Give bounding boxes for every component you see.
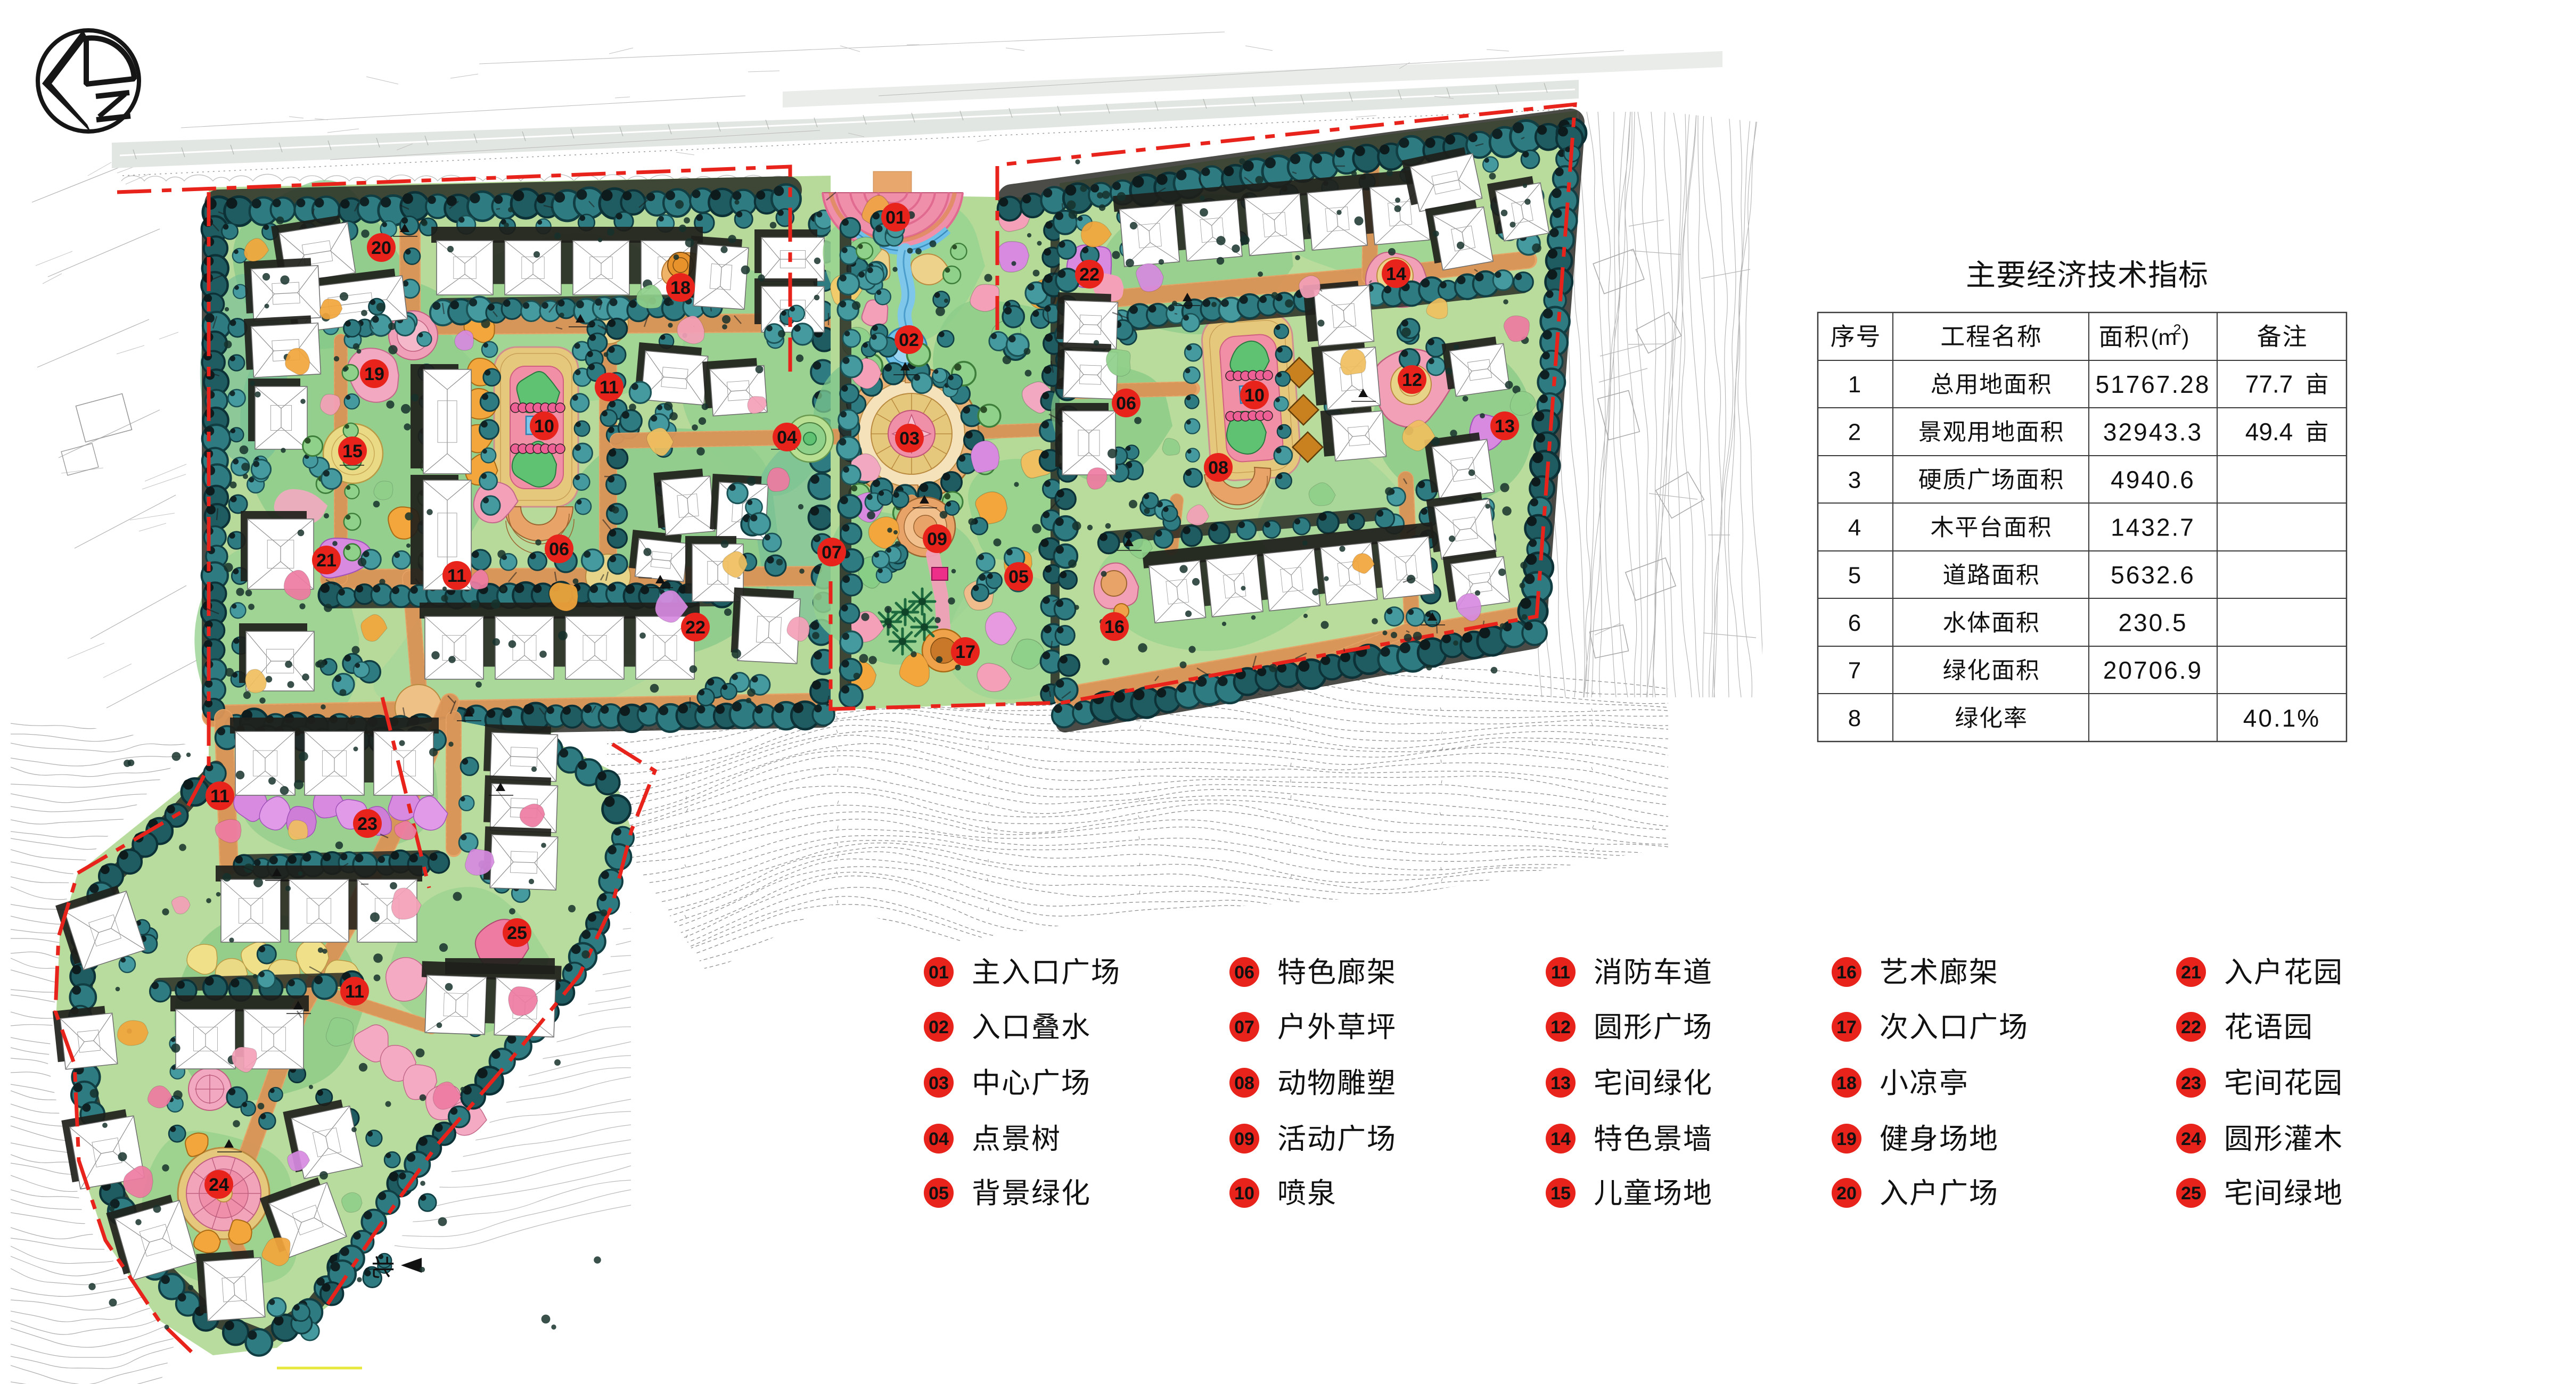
svg-text:11: 11 [600, 377, 619, 398]
svg-text:04: 04 [929, 1129, 949, 1149]
svg-text:7: 7 [1848, 658, 1863, 684]
svg-text:1432.7: 1432.7 [2111, 514, 2195, 541]
svg-text:4: 4 [1848, 515, 1863, 541]
svg-text:3: 3 [1848, 467, 1863, 493]
svg-text:22: 22 [1079, 265, 1100, 285]
svg-text:49.4: 49.4 [2245, 418, 2293, 446]
svg-text:16: 16 [1104, 617, 1125, 637]
svg-text:20: 20 [371, 238, 391, 258]
svg-text:16: 16 [1836, 962, 1857, 983]
svg-text:07: 07 [822, 542, 842, 563]
svg-text:01: 01 [885, 208, 906, 228]
svg-text:09: 09 [927, 529, 947, 549]
svg-text:77.7: 77.7 [2245, 370, 2293, 398]
svg-text:13: 13 [1495, 416, 1515, 436]
svg-text:17: 17 [955, 642, 975, 662]
svg-text:15: 15 [342, 441, 363, 462]
svg-text:08: 08 [1234, 1073, 1254, 1093]
svg-text:18: 18 [670, 278, 691, 298]
svg-text:02: 02 [899, 330, 919, 350]
svg-text:12: 12 [1550, 1017, 1571, 1037]
svg-text:14: 14 [1550, 1129, 1571, 1149]
svg-text:1: 1 [1848, 372, 1863, 398]
svg-text:22: 22 [685, 617, 705, 638]
svg-text:25: 25 [507, 923, 527, 943]
svg-text:40.1%: 40.1% [2243, 704, 2320, 732]
svg-text:05: 05 [1008, 567, 1029, 587]
svg-text:32943.3: 32943.3 [2103, 418, 2203, 446]
svg-text:11: 11 [447, 566, 466, 586]
svg-text:03: 03 [899, 429, 920, 449]
svg-text:11: 11 [1551, 962, 1570, 983]
svg-text:20706.9: 20706.9 [2103, 656, 2203, 684]
svg-text:19: 19 [1836, 1129, 1857, 1149]
svg-text:09: 09 [1234, 1129, 1254, 1149]
svg-text:01: 01 [929, 962, 949, 983]
svg-text:22: 22 [2181, 1017, 2201, 1037]
svg-text:23: 23 [357, 814, 378, 834]
svg-text:13: 13 [1550, 1073, 1571, 1093]
svg-text:230.5: 230.5 [2118, 609, 2187, 637]
svg-text:): ) [2182, 325, 2189, 350]
svg-text:07: 07 [1234, 1017, 1254, 1037]
svg-text:20: 20 [1836, 1183, 1857, 1204]
svg-text:02: 02 [929, 1017, 949, 1037]
svg-text:4940.6: 4940.6 [2111, 466, 2195, 493]
svg-text:10: 10 [1234, 1183, 1254, 1204]
svg-text:17: 17 [1836, 1017, 1857, 1037]
svg-text:8: 8 [1848, 705, 1863, 731]
svg-text:21: 21 [2181, 962, 2201, 983]
svg-text:11: 11 [345, 982, 364, 1002]
svg-text:51767.28: 51767.28 [2096, 370, 2211, 398]
svg-text:11: 11 [210, 786, 229, 806]
svg-text:10: 10 [1244, 385, 1265, 406]
svg-text:21: 21 [316, 550, 337, 571]
svg-text:06: 06 [549, 539, 569, 559]
svg-text:5632.6: 5632.6 [2111, 561, 2195, 589]
svg-text:5: 5 [1848, 562, 1863, 588]
svg-text:25: 25 [2181, 1183, 2201, 1204]
svg-text:15: 15 [1550, 1183, 1571, 1204]
svg-text:19: 19 [364, 364, 384, 384]
svg-text:14: 14 [1386, 264, 1406, 284]
svg-text:2: 2 [1848, 419, 1863, 446]
svg-text:24: 24 [2181, 1129, 2201, 1149]
svg-text:2: 2 [2173, 322, 2181, 337]
svg-text:10: 10 [534, 416, 554, 436]
svg-text:06: 06 [1234, 962, 1254, 983]
svg-text:06: 06 [1116, 393, 1136, 414]
svg-text:05: 05 [929, 1183, 949, 1204]
svg-text:08: 08 [1208, 458, 1228, 478]
svg-text:12: 12 [1402, 370, 1422, 390]
svg-text:04: 04 [777, 427, 797, 448]
svg-text:18: 18 [1836, 1073, 1857, 1093]
svg-text:03: 03 [929, 1073, 949, 1093]
svg-text:6: 6 [1848, 610, 1863, 636]
svg-text:24: 24 [209, 1175, 229, 1195]
svg-text:23: 23 [2181, 1073, 2201, 1093]
